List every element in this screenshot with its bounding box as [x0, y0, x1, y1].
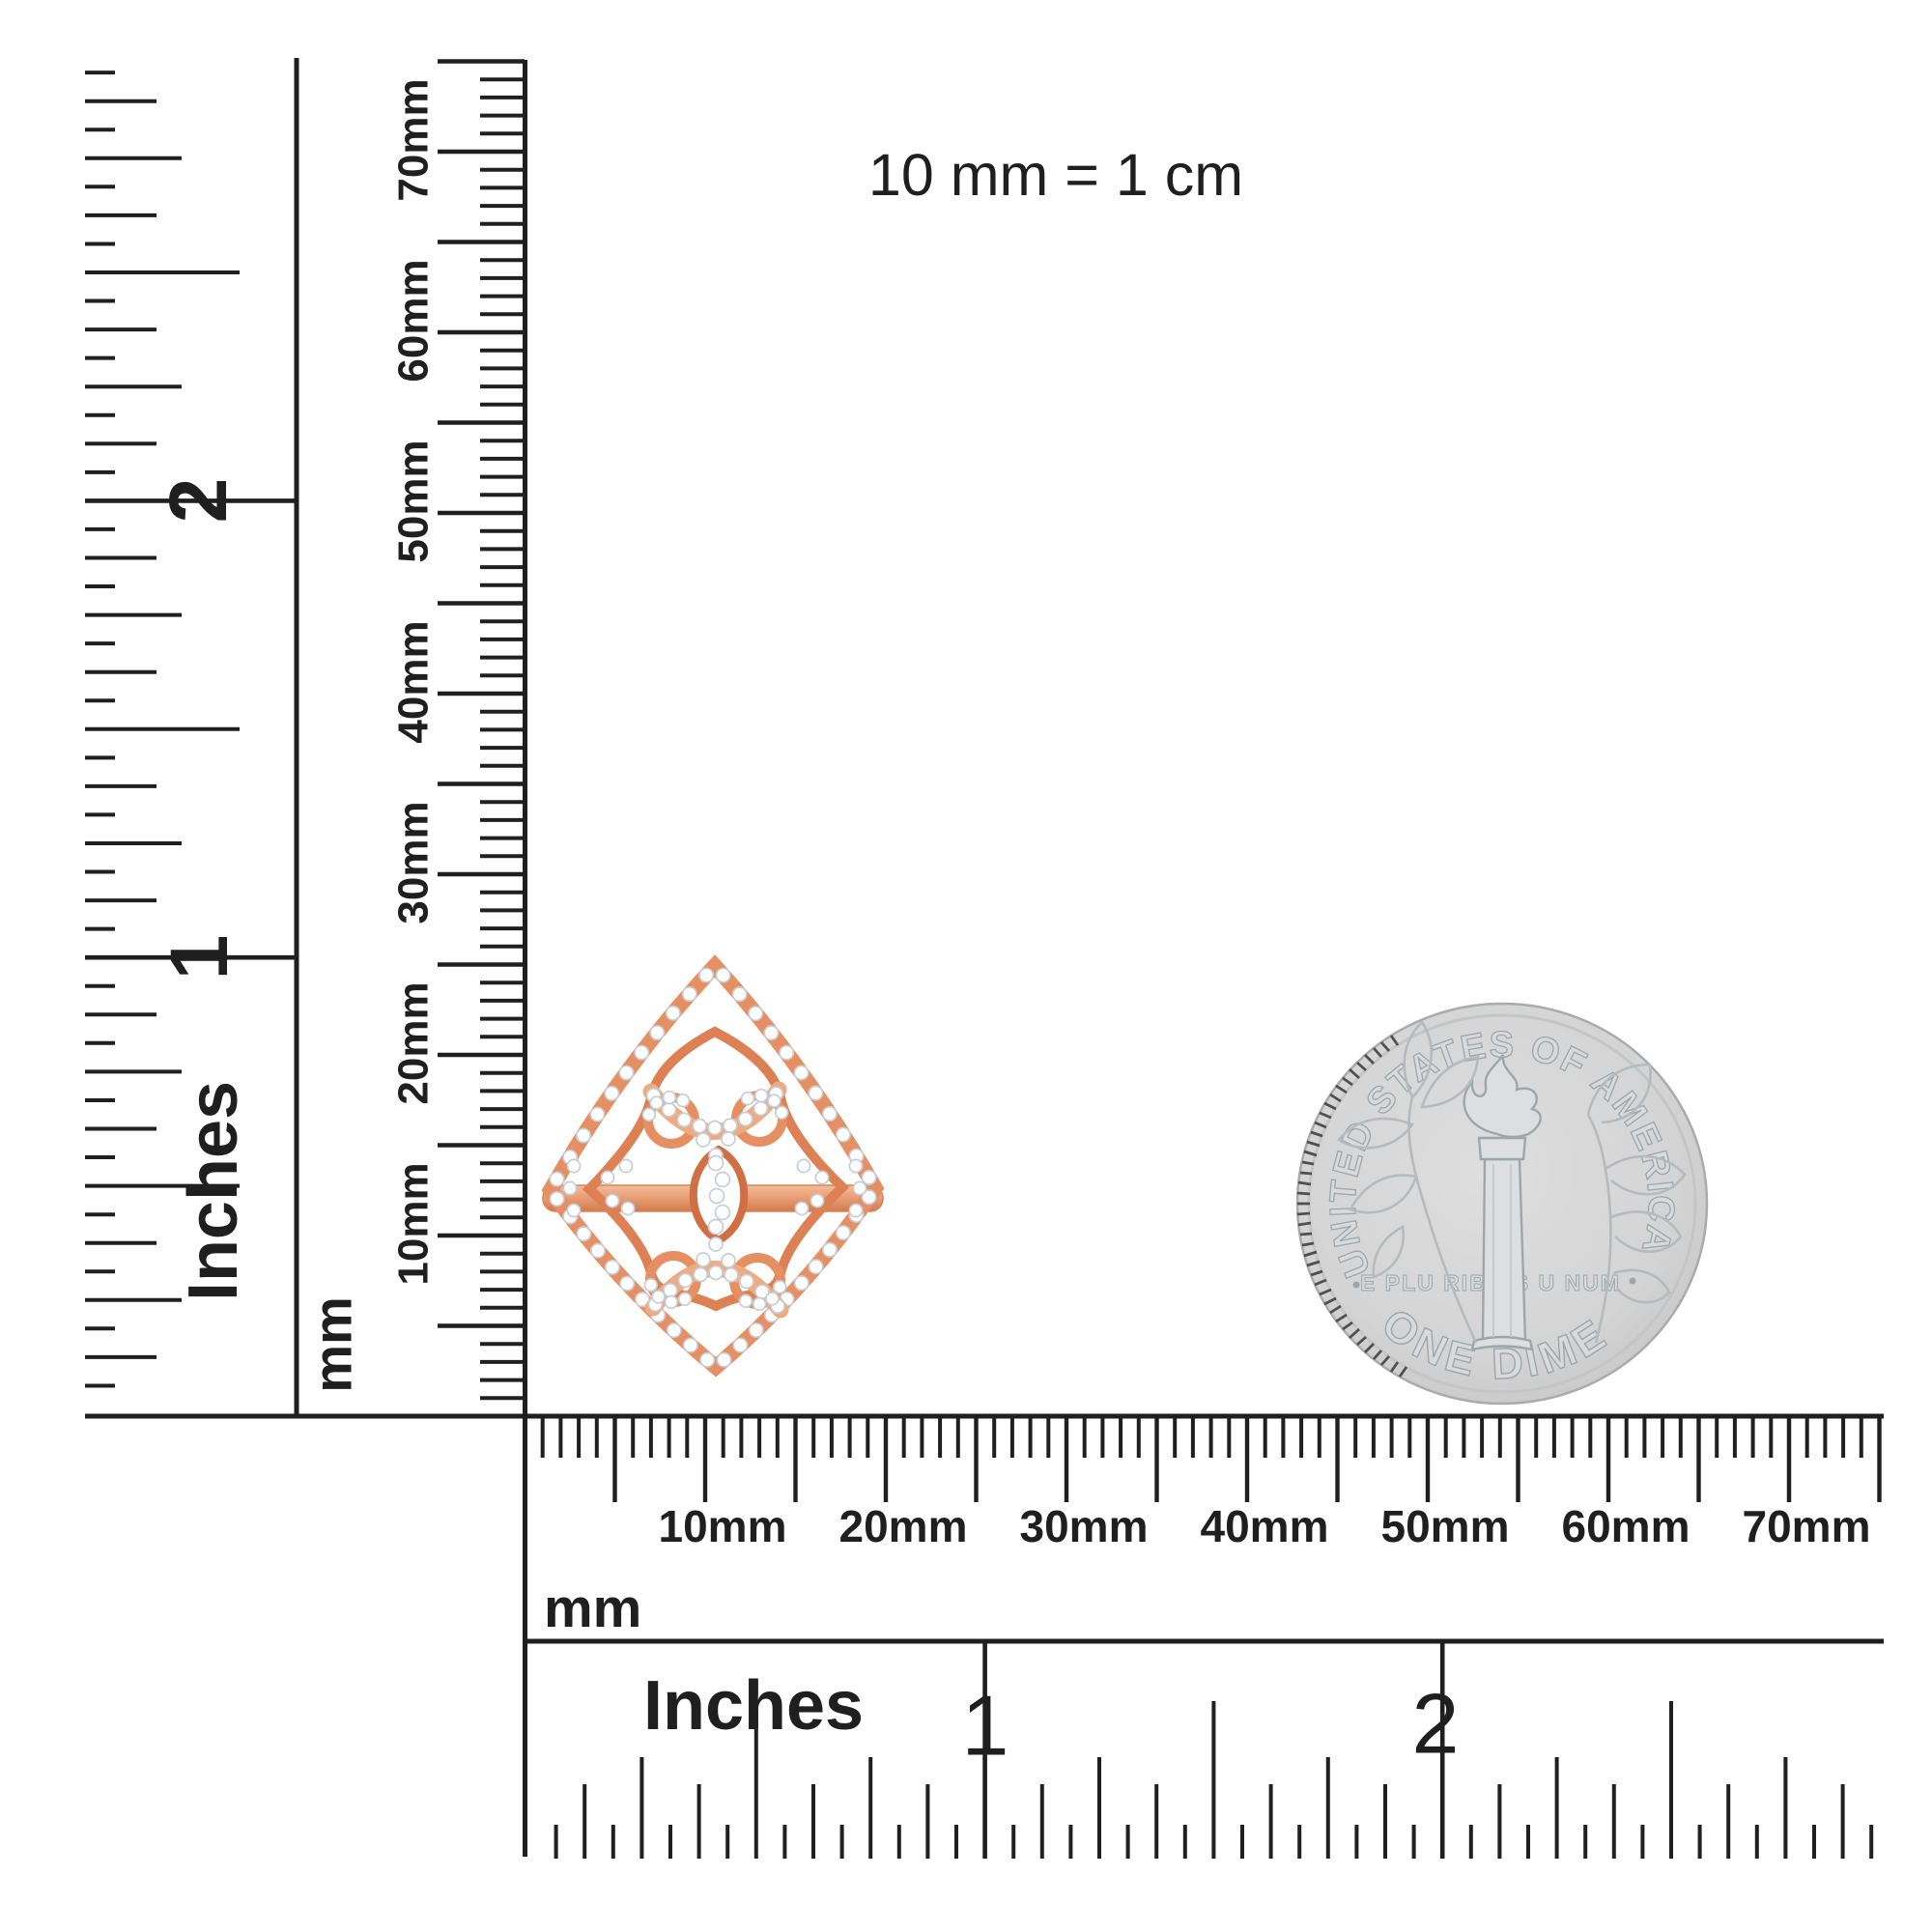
svg-text:60mm: 60mm [1562, 1501, 1690, 1551]
svg-text:Inches: Inches [643, 1667, 864, 1745]
svg-text:2: 2 [1412, 1676, 1460, 1772]
svg-text:1: 1 [154, 935, 244, 980]
svg-text:60mm: 60mm [390, 259, 438, 382]
svg-text:1: 1 [962, 1678, 1009, 1774]
svg-text:70mm: 70mm [390, 78, 438, 201]
svg-text:20mm: 20mm [839, 1501, 968, 1551]
svg-text:50mm: 50mm [390, 440, 438, 562]
svg-text:10 mm = 1 cm: 10 mm = 1 cm [868, 142, 1243, 208]
svg-text:50mm: 50mm [1381, 1501, 1510, 1551]
svg-text:10mm: 10mm [390, 1162, 438, 1285]
svg-text:70mm: 70mm [1743, 1501, 1871, 1551]
svg-text:40mm: 40mm [390, 620, 438, 743]
svg-text:2: 2 [153, 478, 243, 524]
svg-text:mm: mm [302, 1296, 363, 1393]
svg-text:10mm: 10mm [659, 1501, 787, 1551]
svg-text:30mm: 30mm [1020, 1501, 1149, 1551]
svg-text:Inches: Inches [175, 1081, 252, 1301]
svg-text:40mm: 40mm [1201, 1501, 1329, 1551]
svg-text:30mm: 30mm [390, 801, 438, 923]
svg-text:mm: mm [544, 1577, 641, 1639]
svg-text:20mm: 20mm [390, 981, 438, 1104]
